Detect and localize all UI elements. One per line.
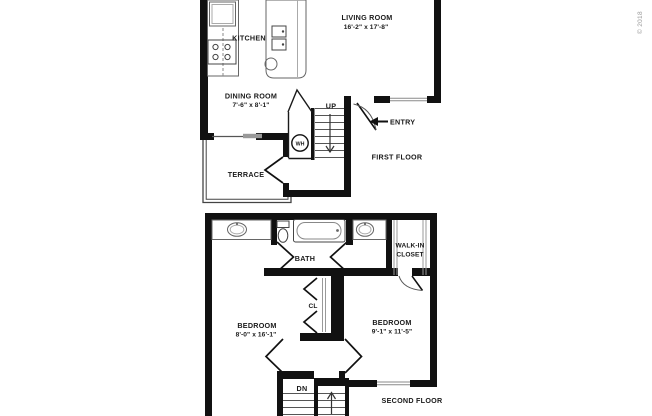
water-heater-icon: WH [292,135,308,151]
copyright-watermark: © 2018 [636,11,644,34]
water-heater-label: WH [296,141,305,147]
bedroom-left-label: BEDROOM [237,321,276,330]
bathtub-icon [294,220,346,243]
bedroom-right-label: BEDROOM [372,318,411,327]
entry-door [354,103,377,130]
bedroom-window [377,379,410,388]
living-room-label: LIVING ROOM [341,13,392,22]
closet-label: CL [309,303,318,310]
terrace-door [265,157,283,183]
stairs-down-label: DN [297,384,308,393]
second-floor-plan: BATH WALK-IN CLOSET CL BEDROOM 8'-0" x 1… [205,213,443,416]
faucet-icon [236,223,238,225]
kitchen-label: KITCHEN [232,34,266,43]
bedroom-right-door [345,339,362,373]
island-sink-icon [272,26,286,50]
entry-label: ENTRY [390,118,415,127]
terrace-label: TERRACE [228,170,265,179]
faucet-icon [364,223,366,225]
stairs-up-label: UP [326,102,337,111]
vanity-left [212,220,271,240]
refrigerator-icon [210,2,236,26]
floor-plan-canvas: WH KITCHEN LIVING ROOM 16'-2" x 17'-8" D… [0,0,652,416]
dining-room-label: DINING ROOM [225,92,277,101]
range-stove-icon [208,40,236,64]
first-floor-title: FIRST FLOOR [372,153,423,162]
second-floor-title: SECOND FLOOR [382,396,443,405]
walk-in-closet-label-line1: WALK-IN [396,243,425,250]
living-room-dims: 16'-2" x 17'-8" [344,24,389,31]
bath-door-left [277,242,294,272]
bedroom-left-door [266,339,283,373]
stairs-down-arrow-icon [328,393,336,415]
bedroom-right-dims: 9'-1" x 11'-5" [372,329,412,336]
terrace-sliding-door [212,134,262,138]
bath-label: BATH [295,254,315,263]
bedroom-left-dims: 8'-0" x 16'-1" [236,332,277,339]
vanity-right [353,220,386,240]
entry-window [390,95,427,104]
first-floor-plan: WH KITCHEN LIVING ROOM 16'-2" x 17'-8" D… [200,0,441,203]
walk-in-closet-door [399,276,423,291]
bath-door-right [331,242,348,272]
stairs-up [311,108,344,160]
floor-plan-page: WH KITCHEN LIVING ROOM 16'-2" x 17'-8" D… [0,0,652,416]
dining-room-dims: 7'-6" x 8'-1" [232,102,269,109]
stairs-up-arrow-icon [326,114,334,152]
toilet-icon [277,221,289,242]
walk-in-closet-label-line2: CLOSET [396,252,423,259]
